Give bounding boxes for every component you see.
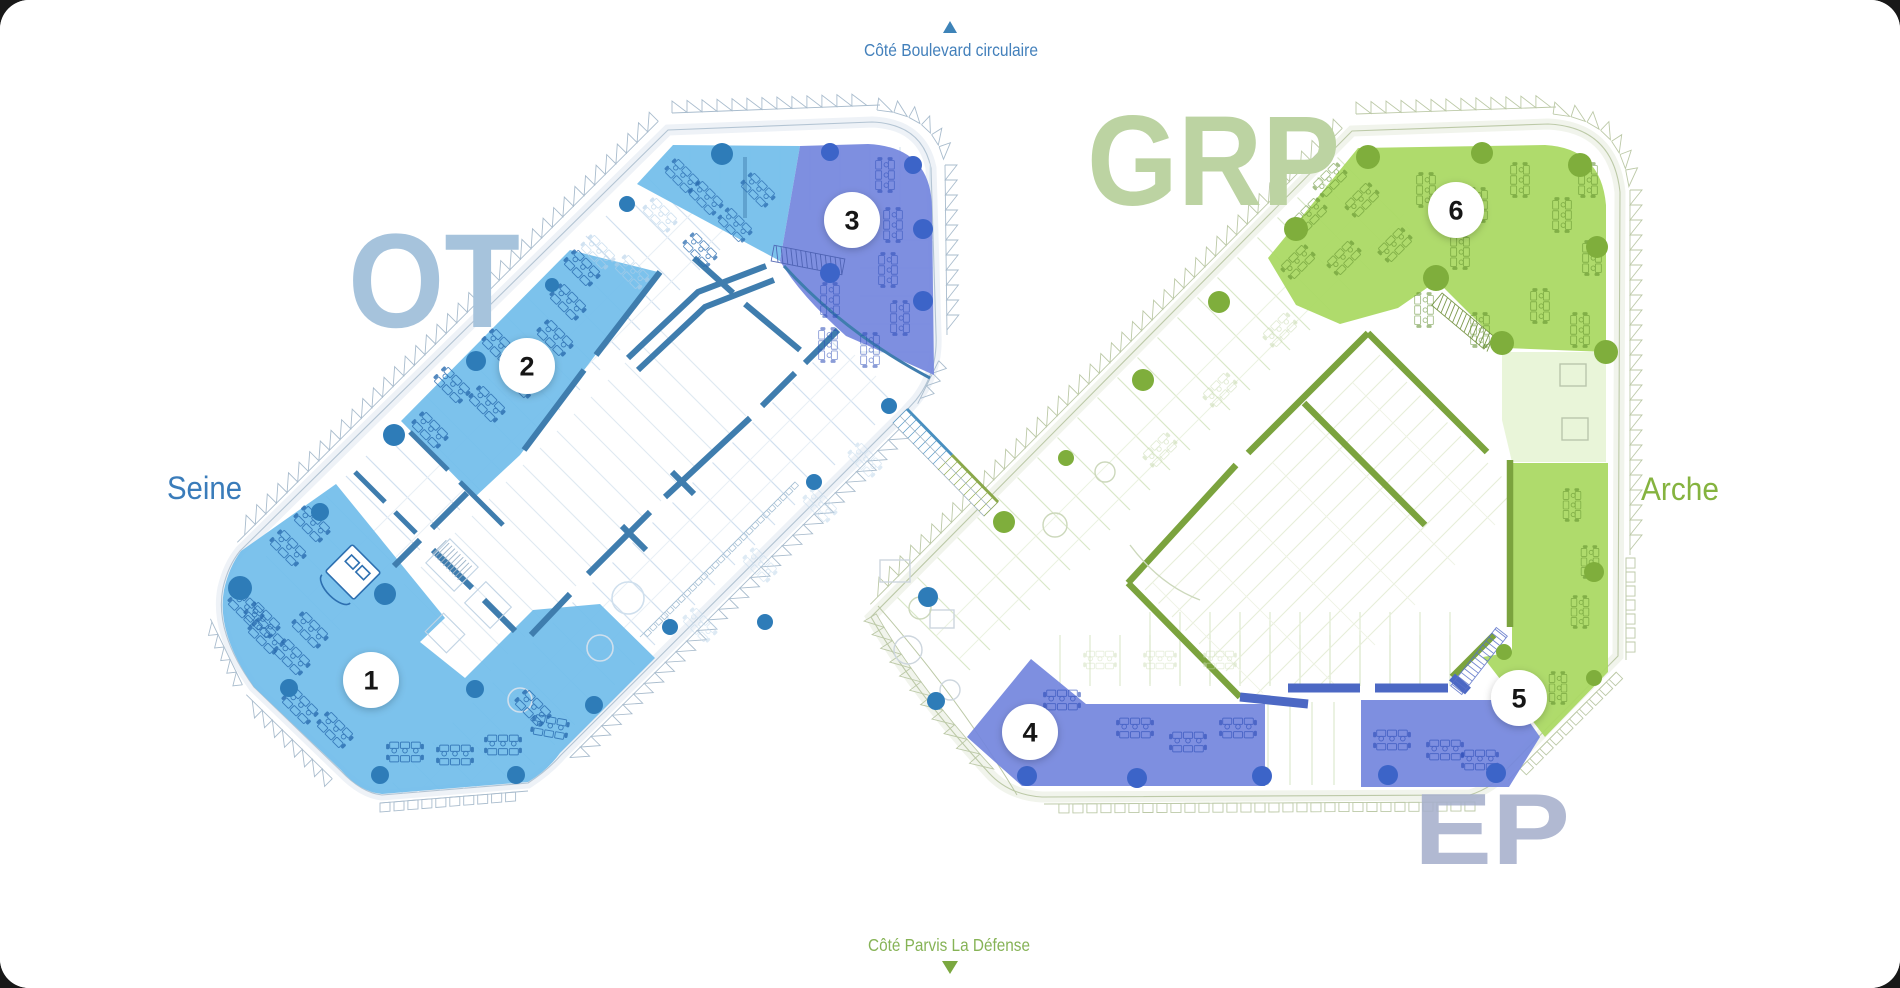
svg-text:3: 3 — [844, 206, 859, 236]
svg-text:GRP: GRP — [1087, 90, 1340, 233]
svg-text:1: 1 — [363, 666, 378, 696]
svg-text:Seine: Seine — [167, 470, 242, 506]
svg-text:2: 2 — [519, 352, 534, 382]
svg-text:Côté Boulevard circulaire: Côté Boulevard circulaire — [864, 40, 1038, 60]
svg-text:5: 5 — [1511, 684, 1526, 714]
svg-text:6: 6 — [1448, 196, 1463, 226]
svg-text:OT: OT — [348, 207, 520, 356]
svg-text:4: 4 — [1022, 718, 1037, 748]
svg-text:Côté Parvis La Défense: Côté Parvis La Défense — [868, 935, 1030, 955]
svg-text:Arche: Arche — [1641, 471, 1719, 507]
svg-text:EP: EP — [1414, 774, 1570, 886]
